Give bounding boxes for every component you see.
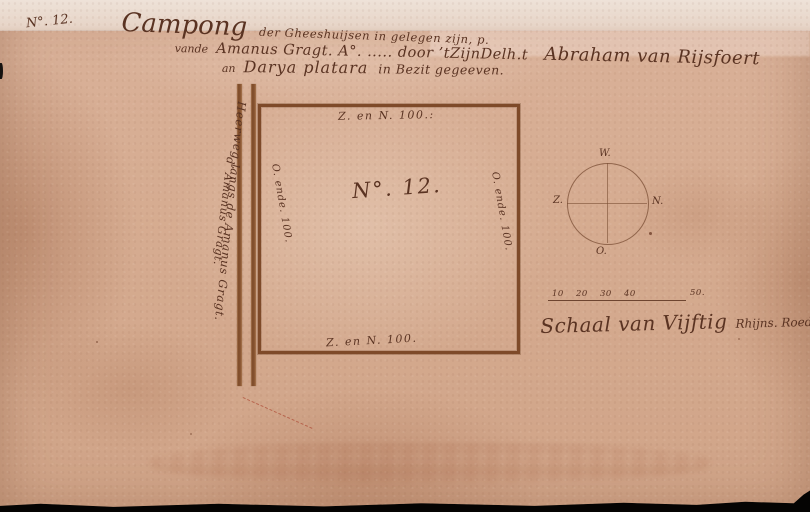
red-dashed-line xyxy=(243,397,313,429)
plot-side-label-top: Z. en N. 100.: xyxy=(338,108,435,123)
scale-caption-suffix: Rhijns. Roede. xyxy=(735,315,810,331)
compass-label-west: W. xyxy=(599,148,611,159)
ink-speck xyxy=(649,232,652,235)
title-line-3-name: Darya platara xyxy=(243,57,368,77)
title-line-2-vande: vande xyxy=(175,42,209,56)
scale-tick-20: 20 xyxy=(576,289,588,299)
compass-label-east: O. xyxy=(596,246,607,257)
plot-outline xyxy=(258,104,520,354)
scale-caption: Schaal van Vijftig Rhijns. Roede. xyxy=(540,307,810,338)
ink-speck xyxy=(738,338,740,340)
road-line-east xyxy=(251,84,256,386)
ink-bleed-through xyxy=(150,443,710,483)
compass-rose xyxy=(567,163,649,245)
scale-bar xyxy=(548,300,686,301)
compass-axis-vertical xyxy=(607,163,608,243)
compass-label-north: N. xyxy=(652,196,663,207)
compass-label-south: Z. xyxy=(553,195,563,206)
ink-speck xyxy=(96,341,98,343)
map-sheet: N°. 12. Campong der Gheeshuijsen in gele… xyxy=(0,0,810,512)
ink-speck xyxy=(190,433,192,435)
scale-tick-10: 10 xyxy=(552,289,564,299)
title-line-3-an: an xyxy=(222,62,236,75)
scale-caption-main: Schaal van Vijftig xyxy=(540,309,728,338)
scale-tick-30: 30 xyxy=(600,289,612,299)
scale-tick-40: 40 xyxy=(624,289,636,299)
scan-edge-notch xyxy=(0,63,3,79)
title-line-3: an Darya platara in Bezit gegeeven. xyxy=(222,57,504,78)
paper-background: N°. 12. Campong der Gheeshuijsen in gele… xyxy=(0,0,810,512)
title-line-3-rest: in Bezit gegeeven. xyxy=(378,61,504,77)
scale-tick-50: 50. xyxy=(690,288,705,298)
title-line-2-name: Abraham van Rijsfoert xyxy=(544,44,760,70)
